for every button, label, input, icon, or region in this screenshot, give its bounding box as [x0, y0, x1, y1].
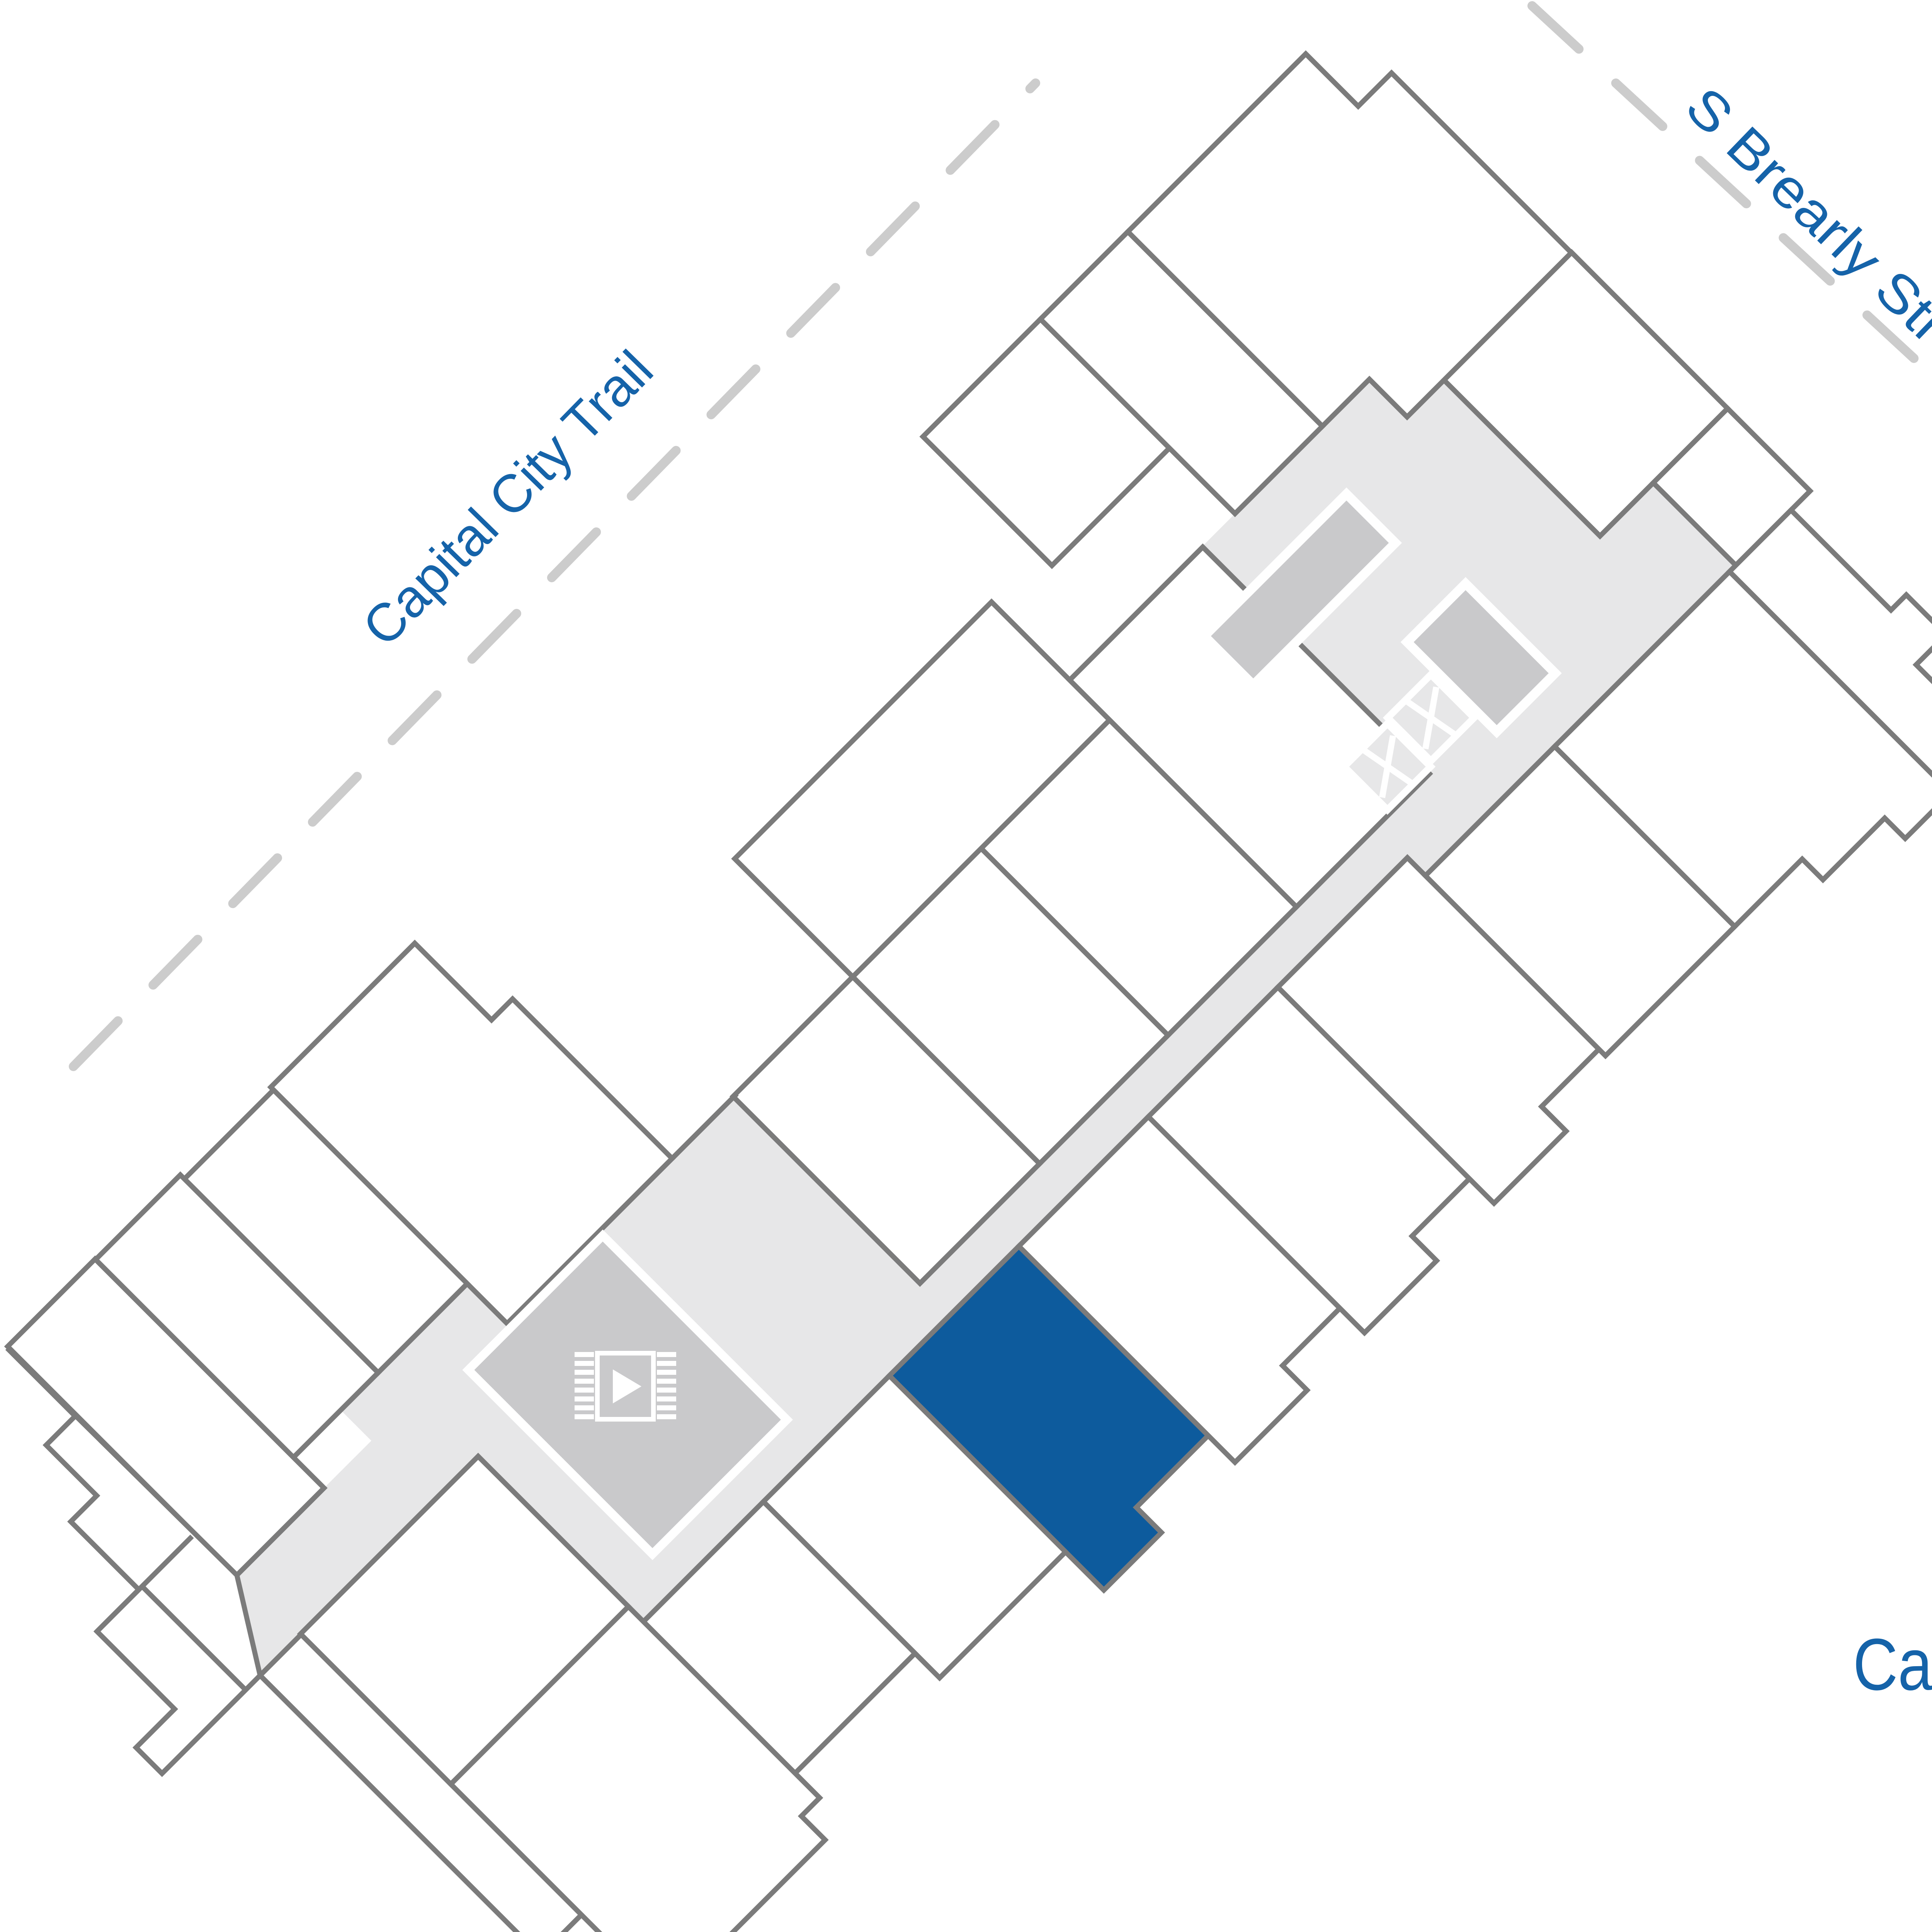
svg-text:Capitol: Capitol	[1853, 1624, 1932, 1706]
